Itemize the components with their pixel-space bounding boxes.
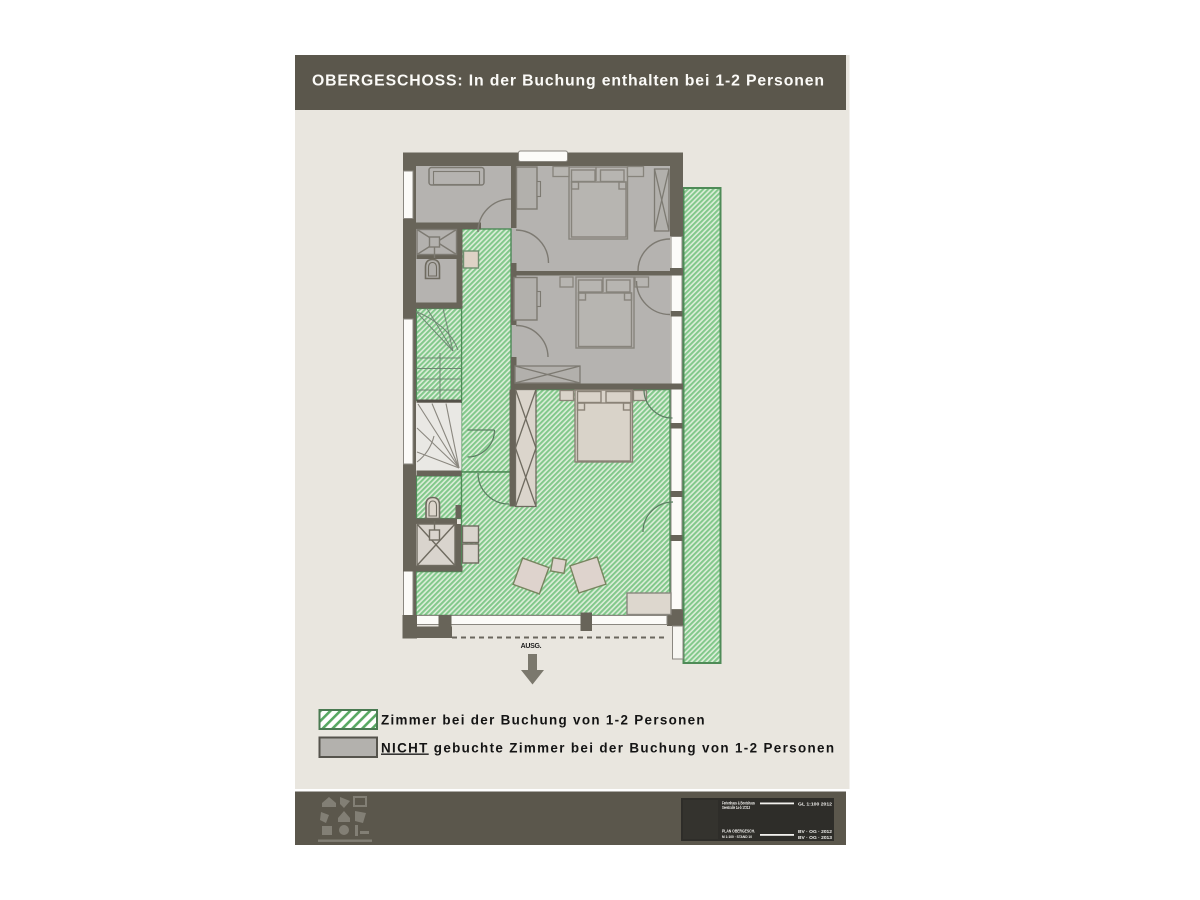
svg-text:BV · OG · 2013: BV · OG · 2013	[798, 835, 832, 841]
svg-text:GL 1:100 2012: GL 1:100 2012	[798, 802, 832, 808]
svg-text:AUSG.: AUSG.	[521, 643, 542, 650]
svg-text:OBERGESCHOSS: In der Buchung e: OBERGESCHOSS: In der Buchung enthalten b…	[312, 73, 825, 90]
svg-text:M 1:100 · STAND 10: M 1:100 · STAND 10	[722, 834, 753, 839]
svg-text:Zimmer bei der Buchung von 1-2: Zimmer bei der Buchung von 1-2 Personen	[381, 713, 706, 728]
svg-text:Seestraße 1a-b 17213: Seestraße 1a-b 17213	[722, 805, 750, 810]
svg-text:BV · OG · 2012: BV · OG · 2012	[798, 829, 832, 835]
svg-text:NICHT gebuchte Zimmer bei der: NICHT gebuchte Zimmer bei der Buchung vo…	[381, 741, 835, 756]
svg-text:PLAN OBERGESCH.: PLAN OBERGESCH.	[722, 829, 755, 834]
